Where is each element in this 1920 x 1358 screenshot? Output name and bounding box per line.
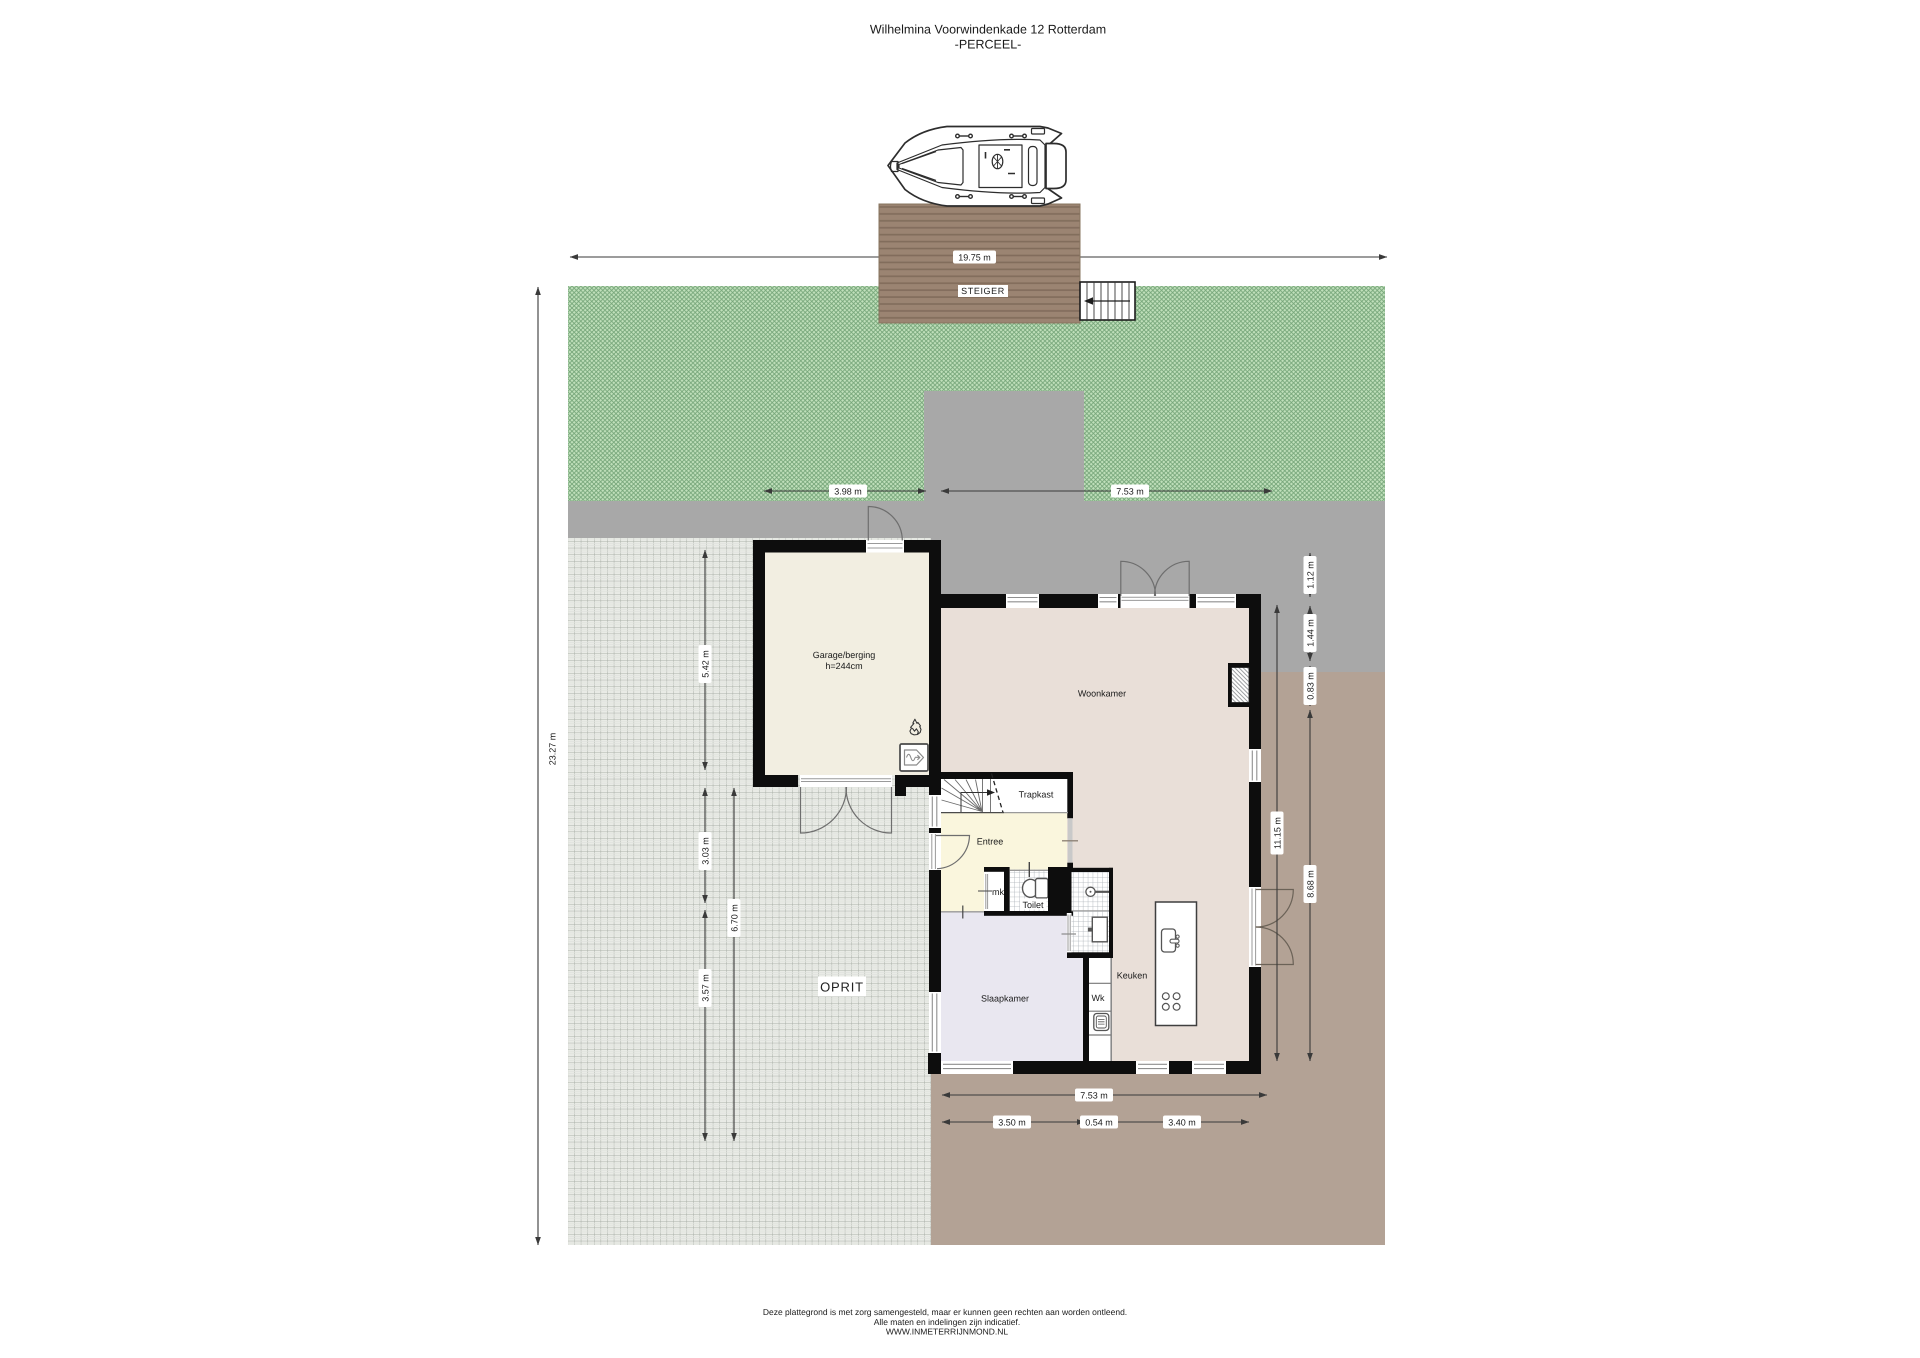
svg-text:h=244cm: h=244cm (825, 661, 862, 671)
svg-text:Entree: Entree (977, 837, 1004, 847)
svg-text:Garage/berging: Garage/berging (813, 650, 876, 660)
svg-text:1.12 m: 1.12 m (1305, 561, 1315, 589)
svg-text:11.15 m: 11.15 m (1272, 817, 1282, 849)
svg-text:7.53 m: 7.53 m (1116, 486, 1144, 496)
svg-text:3.40 m: 3.40 m (1168, 1117, 1196, 1127)
svg-text:3.50 m: 3.50 m (998, 1117, 1026, 1127)
svg-text:OPRIT: OPRIT (820, 980, 864, 995)
svg-text:3.57 m: 3.57 m (700, 974, 710, 1002)
svg-text:Woonkamer: Woonkamer (1078, 689, 1126, 699)
svg-text:Deze plattegrond is met zorg s: Deze plattegrond is met zorg samengestel… (763, 1307, 1127, 1317)
svg-text:6.70 m: 6.70 m (729, 904, 739, 932)
svg-text:-PERCEEL-: -PERCEEL- (955, 38, 1022, 52)
svg-text:0.54 m: 0.54 m (1085, 1117, 1113, 1127)
svg-text:5.42 m: 5.42 m (700, 650, 710, 678)
svg-text:1.44 m: 1.44 m (1305, 619, 1315, 647)
svg-text:0.83 m: 0.83 m (1305, 672, 1315, 700)
svg-text:19.75 m: 19.75 m (958, 252, 991, 262)
svg-text:7.53 m: 7.53 m (1080, 1090, 1108, 1100)
svg-text:Slaapkamer: Slaapkamer (981, 994, 1029, 1004)
svg-text:Wk: Wk (1092, 993, 1105, 1003)
svg-text:8.68 m: 8.68 m (1305, 870, 1315, 898)
svg-text:Alle maten en indelingen zijn: Alle maten en indelingen zijn indicatief… (874, 1317, 1020, 1327)
svg-text:mk: mk (992, 887, 1004, 897)
svg-text:Wilhelmina Voorwindenkade 12 R: Wilhelmina Voorwindenkade 12 Rotterdam (870, 23, 1106, 37)
svg-text:23.27 m: 23.27 m (547, 733, 557, 766)
svg-text:STEIGER: STEIGER (961, 286, 1005, 296)
svg-text:Trapkast: Trapkast (1019, 790, 1054, 800)
svg-text:Toilet: Toilet (1022, 900, 1044, 910)
svg-text:WWW.INMETERRIJNMOND.NL: WWW.INMETERRIJNMOND.NL (886, 1327, 1009, 1337)
svg-text:3.98 m: 3.98 m (834, 486, 862, 496)
svg-text:Keuken: Keuken (1117, 971, 1148, 981)
svg-text:3.03 m: 3.03 m (700, 837, 710, 865)
